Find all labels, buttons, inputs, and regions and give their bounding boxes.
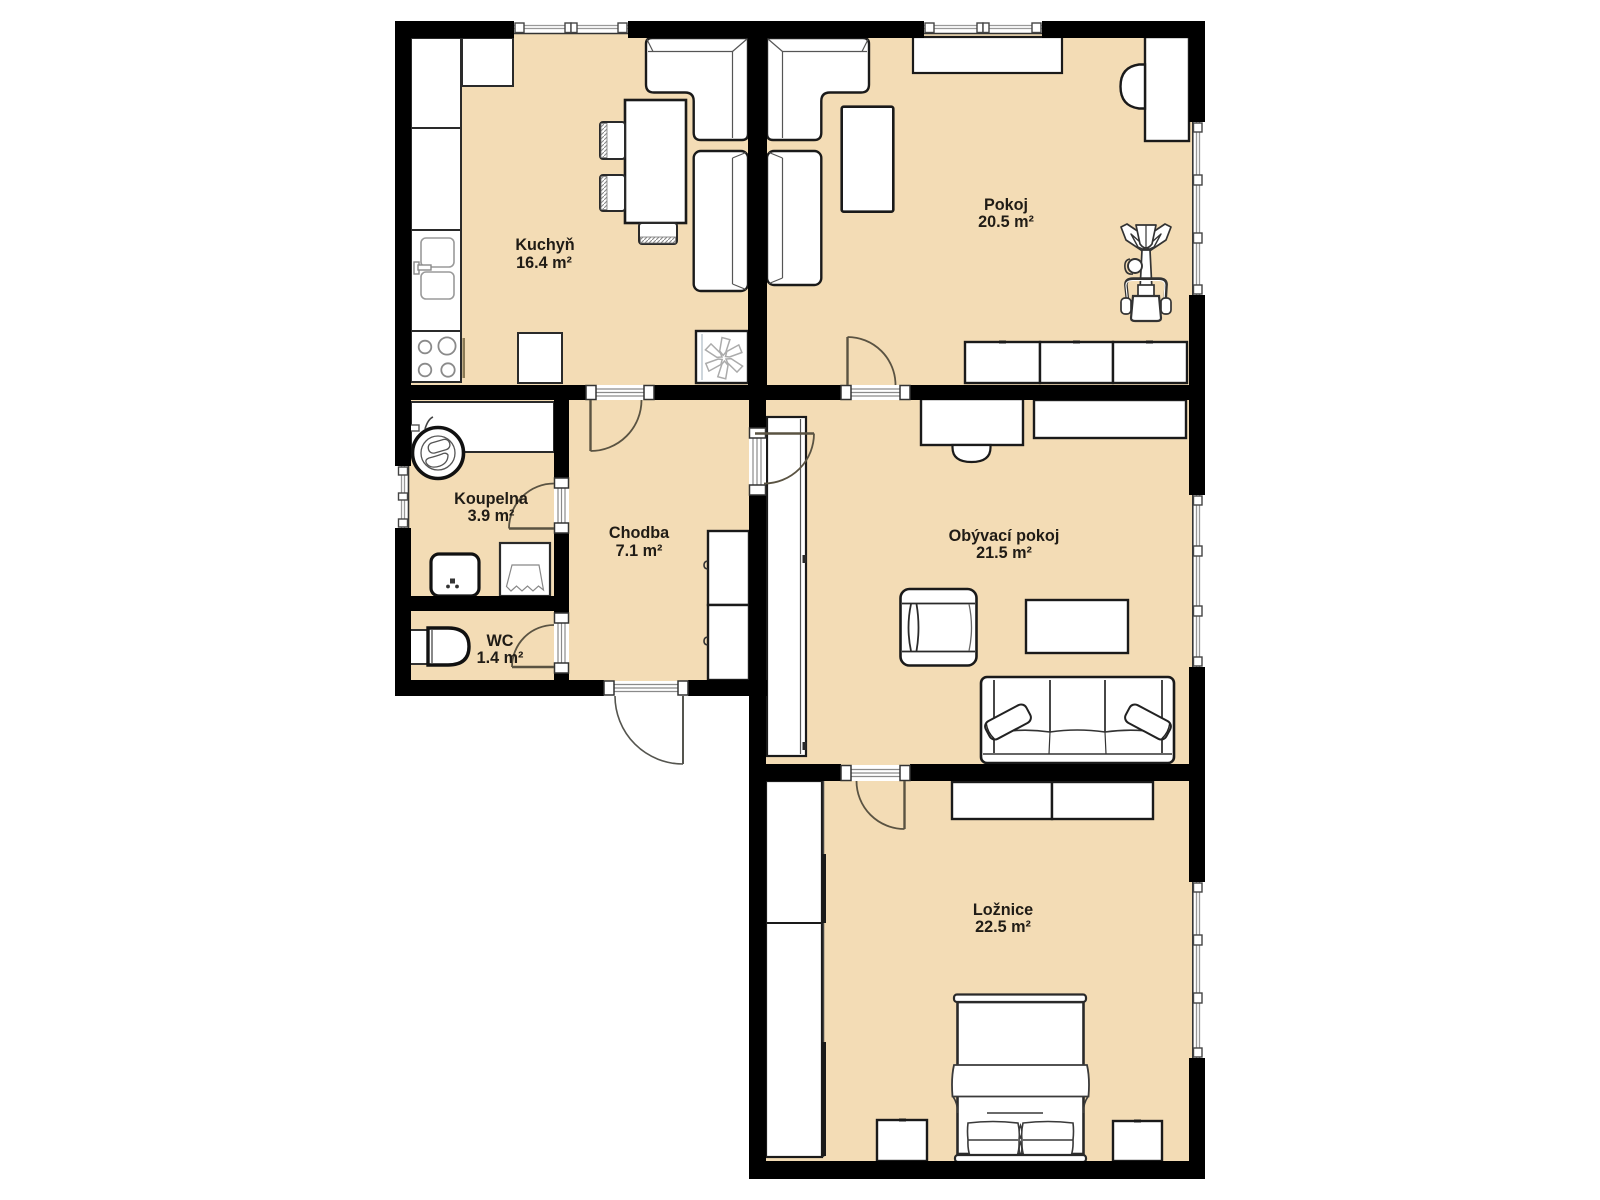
svg-text:Obývací pokoj: Obývací pokoj xyxy=(949,527,1060,545)
svg-text:Koupelna: Koupelna xyxy=(454,490,529,508)
svg-text:16.4 m²: 16.4 m² xyxy=(516,254,572,272)
svg-text:3.9 m²: 3.9 m² xyxy=(468,507,515,525)
svg-text:7.1 m²: 7.1 m² xyxy=(616,542,663,560)
svg-text:1.4 m²: 1.4 m² xyxy=(477,649,524,667)
svg-text:22.5 m²: 22.5 m² xyxy=(975,918,1031,936)
svg-text:Kuchyň: Kuchyň xyxy=(515,236,574,254)
svg-text:WC: WC xyxy=(487,632,514,650)
svg-text:Chodba: Chodba xyxy=(609,524,670,542)
svg-text:21.5 m²: 21.5 m² xyxy=(976,544,1032,562)
svg-text:Ložnice: Ložnice xyxy=(973,901,1033,919)
svg-text:20.5 m²: 20.5 m² xyxy=(978,213,1034,231)
svg-text:Pokoj: Pokoj xyxy=(984,196,1028,214)
